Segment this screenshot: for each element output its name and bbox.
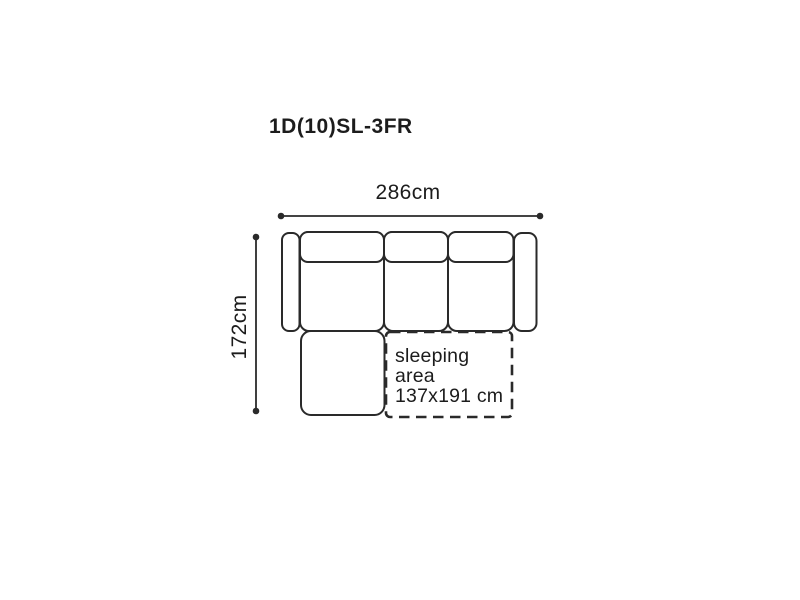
backrest-cushion-right xyxy=(448,232,514,262)
backrest-cushion-left xyxy=(300,232,384,262)
width-dimension-label: 286cm xyxy=(375,181,440,204)
sleeping-area-label-line1: sleeping xyxy=(395,345,469,367)
chaise-section xyxy=(301,331,385,415)
width-dimension-start-dot xyxy=(278,213,285,220)
left-armrest xyxy=(282,233,300,331)
product-title: 1D(10)SL-3FR xyxy=(269,115,413,138)
right-armrest xyxy=(514,233,537,331)
sofa-dimension-diagram: 1D(10)SL-3FR 286cm 172cm xyxy=(0,0,800,600)
sleeping-area-label-line2: area xyxy=(395,365,435,387)
height-dimension: 172cm xyxy=(228,234,259,415)
width-dimension-end-dot xyxy=(537,213,544,220)
diagram-canvas: 1D(10)SL-3FR 286cm 172cm xyxy=(0,0,800,600)
width-dimension: 286cm xyxy=(278,181,544,219)
sleeping-area-label-line3: 137x191 cm xyxy=(395,385,503,407)
sleeping-area: sleeping area 137x191 cm xyxy=(386,332,512,417)
backrest-cushion-middle xyxy=(384,232,448,262)
height-dimension-start-dot xyxy=(253,234,260,241)
height-dimension-label: 172cm xyxy=(228,294,251,359)
height-dimension-end-dot xyxy=(253,408,260,415)
